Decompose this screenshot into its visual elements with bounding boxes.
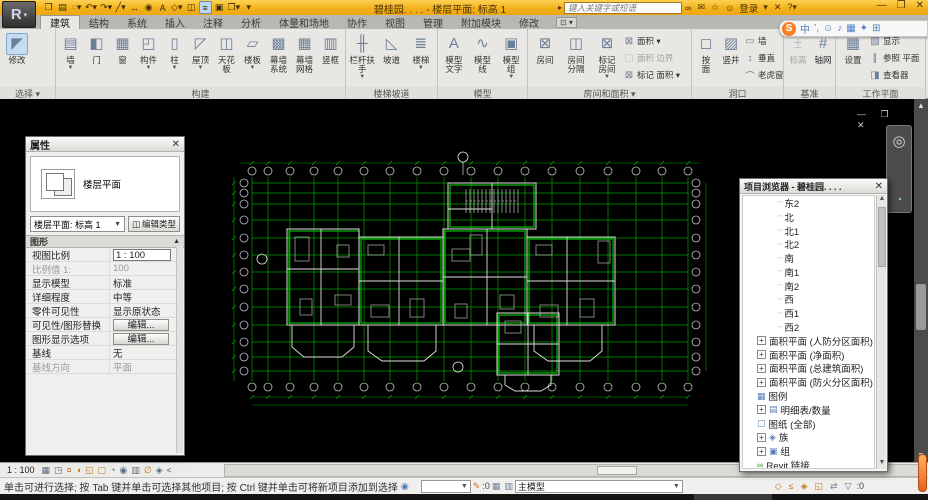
expand-icon[interactable]: +: [757, 447, 766, 456]
furniture: [536, 245, 552, 255]
grid-bubble-left: [240, 268, 248, 276]
editing-requests-count: :0: [482, 481, 490, 491]
chevron-down-icon: ▼: [359, 74, 365, 80]
type-selector-dropdown[interactable]: 楼层平面: 标高 1▼: [30, 216, 125, 232]
close-button[interactable]: ✕: [916, 0, 924, 11]
ime-skin[interactable]: ✦: [860, 23, 868, 34]
customize-qat-icon[interactable]: ▾: [242, 1, 255, 14]
edit-button[interactable]: 编辑...: [113, 333, 169, 345]
link-icon: ∞: [757, 460, 763, 469]
dormer-icon: ⌒: [744, 69, 756, 81]
chevron-down-icon: ▼: [198, 65, 204, 71]
panel-label-工作平面[interactable]: 工作平面: [836, 87, 925, 99]
modify-button[interactable]: ◤修改: [2, 31, 32, 85]
elevation-marker: [453, 362, 463, 372]
property-label: 基线: [26, 346, 110, 360]
grid-bubble-right: [692, 234, 700, 242]
furniture: [455, 304, 467, 318]
grid-bubble-bottom: [684, 383, 692, 391]
property-label: 显示模型: [26, 276, 110, 290]
crop-view-icon[interactable]: ◱: [85, 465, 94, 476]
grid-bubble-top: [632, 167, 640, 175]
property-label: 详细程度: [26, 290, 110, 304]
tab-体量和场地[interactable]: 体量和场地: [270, 15, 338, 29]
tab-附加模块[interactable]: 附加模块: [452, 15, 510, 29]
ramp-icon: ◺: [380, 33, 402, 55]
ceiling-icon: ◫: [216, 33, 238, 55]
area-button[interactable]: ⊠面积 ▾: [623, 33, 680, 49]
wall-opening-icon: ▭: [744, 35, 756, 47]
status-hint: 单击可进行选择; 按 Tab 键并单击可选择其他项目; 按 Ctrl 键并单击可…: [0, 479, 398, 494]
grid-button[interactable]: #轴网: [811, 31, 835, 85]
temporary-hide-isolate-icon[interactable]: ◔: [110, 465, 115, 475]
grid-bubble-bottom: [360, 383, 368, 391]
tab-建筑[interactable]: 建筑: [40, 15, 80, 29]
property-row: 视图比例1 : 100: [26, 248, 184, 262]
select-links-icon[interactable]: ◇: [775, 481, 782, 492]
grid-bubble-left: [240, 251, 248, 259]
filter-icon[interactable]: ▽: [845, 481, 852, 492]
furniture: [580, 299, 594, 317]
taskbar: [0, 494, 928, 500]
window-button[interactable]: ▦窗: [110, 31, 135, 85]
chevron-down-icon: ▼: [250, 65, 256, 71]
editing-requests-icon[interactable]: ✎: [473, 481, 481, 492]
tree-item-南1[interactable]: ┈南1: [743, 265, 874, 279]
area-boundary-icon: ▢: [623, 52, 635, 64]
grid-bubble-bottom: [576, 383, 584, 391]
tree-item-西[interactable]: ┈西: [743, 293, 874, 307]
tab-插入[interactable]: 插入: [156, 15, 194, 29]
ime-soft-keyboard[interactable]: ▦: [846, 23, 855, 34]
ceiling-button[interactable]: ◫天花板: [214, 31, 239, 85]
grid-bubble-top: [413, 167, 421, 175]
grid-bubble-right: [692, 321, 700, 329]
by-face-icon: ◻: [695, 33, 717, 55]
grid-bubble-left: [240, 321, 248, 329]
project-browser: 项目浏览器 - 碧桂园. . . . ✕ ┈东2┈北┈北1┈北2┈南┈南1┈南2…: [739, 178, 888, 472]
wall-button[interactable]: ▤墙▼: [58, 31, 83, 85]
grid-bubble-top: [576, 167, 584, 175]
group-icon: ▣: [769, 446, 778, 457]
type-preview-label: 楼层平面: [83, 177, 121, 191]
save-icon[interactable]: ▤: [56, 1, 69, 14]
scroll-up-icon[interactable]: ▲: [914, 99, 928, 112]
tag-area-icon: ⊠: [623, 69, 635, 81]
select-by-face-icon[interactable]: ◱: [815, 481, 824, 492]
stair-button[interactable]: ≣楼梯▼: [407, 31, 435, 85]
viewer-button[interactable]: ◨查看器: [869, 67, 919, 83]
project-browser-title: 项目浏览器 - 碧桂园. . . .: [744, 180, 842, 193]
text-icon[interactable]: A: [156, 1, 169, 14]
curtain-system-icon: ▩: [268, 33, 290, 55]
chevron-down-icon: ▼: [508, 74, 514, 80]
steering-wheel-icon[interactable]: ◎: [892, 132, 905, 150]
tree-item-图纸 (全部)[interactable]: ▢图纸 (全部): [743, 417, 874, 431]
project-browser-title-bar[interactable]: 项目浏览器 - 碧桂园. . . . ✕: [740, 179, 887, 194]
signin-arrow-icon[interactable]: ▾: [763, 2, 768, 13]
tree-item-北1[interactable]: ┈北1: [743, 224, 874, 238]
room-button[interactable]: ⊠房间: [530, 31, 560, 85]
ramp-button[interactable]: ◺坡道: [377, 31, 405, 85]
shadows-icon[interactable]: ◑: [76, 465, 81, 475]
collapse-icon[interactable]: <: [167, 466, 172, 475]
grid-bubble-right: [692, 353, 700, 361]
detail-level-icon[interactable]: ▦: [42, 465, 51, 476]
selection-filter-icon[interactable]: ◉: [401, 481, 409, 492]
component-button[interactable]: ◰构件▼: [136, 31, 161, 85]
curtain-grid-button[interactable]: ▦幕墙网格: [292, 31, 317, 85]
grid-bubble-right: [692, 338, 700, 346]
panel-label-构建[interactable]: 构建: [56, 87, 345, 99]
title-bar: R▾ ❒▤◌▾↶▾↷▾╱▾↔◉A◇▾◫≡▣❐▾▾ 碧桂园. . . . - 楼层…: [0, 0, 928, 15]
model-group-button[interactable]: ▣模型组▼: [497, 31, 525, 85]
status-bar: 单击可进行选择; 按 Tab 键并单击可选择其他项目; 按 Ctrl 键并单击可…: [0, 477, 928, 494]
browser-scroll-thumb[interactable]: [878, 207, 886, 267]
favorites-icon[interactable]: ☆: [711, 2, 719, 13]
visual-style-icon[interactable]: ◳: [54, 465, 63, 476]
communication-center-icon[interactable]: ✉: [697, 2, 705, 13]
curtain-system-button[interactable]: ▩幕墙系统: [266, 31, 291, 85]
minimize-button[interactable]: —: [877, 0, 887, 11]
collapse-icon[interactable]: ▲: [173, 238, 180, 245]
workset-status-icon[interactable]: ▥: [504, 481, 513, 492]
open-icon[interactable]: ❒: [42, 1, 55, 14]
column-icon: ▯: [164, 33, 186, 55]
project-browser-scrollbar[interactable]: ▲ ▼: [876, 195, 886, 469]
elevation-marker: [257, 254, 267, 264]
panel-label-楼梯坡道[interactable]: 楼梯坡道: [346, 87, 437, 99]
tab-协作[interactable]: 协作: [338, 15, 376, 29]
tree-item-西1[interactable]: ┈西1: [743, 306, 874, 320]
expand-icon[interactable]: +: [757, 433, 766, 442]
tree-item-图例[interactable]: ▦图例: [743, 389, 874, 403]
application-menu-button[interactable]: R▾: [2, 1, 36, 28]
grid-bubble-bottom: [310, 383, 318, 391]
dormer-button[interactable]: ⌒老虎窗: [744, 67, 784, 83]
expand-icon[interactable]: +: [757, 405, 766, 414]
zoom-icon[interactable]: ◔: [896, 194, 903, 206]
default-3d-view-icon[interactable]: ◇▾: [170, 1, 183, 14]
signin-label[interactable]: 登录: [739, 1, 758, 15]
worksharing-display-icon[interactable]: ▦: [492, 481, 501, 492]
reveal-hidden-elements-icon[interactable]: ◉: [119, 465, 127, 476]
column-button[interactable]: ▯柱▼: [162, 31, 187, 85]
grid-bubble-left: [240, 303, 248, 311]
balcony-bay: [292, 325, 354, 357]
edit-type-button[interactable]: ◫ 编辑类型: [128, 216, 180, 232]
ime-chinese-mode[interactable]: 中: [800, 21, 810, 36]
tab-注释[interactable]: 注释: [194, 15, 232, 29]
grid-bubble-top: [286, 167, 294, 175]
grid-bubble-bottom: [386, 383, 394, 391]
aligned-dimension-icon[interactable]: ↔: [128, 1, 141, 14]
grid-bubble-top: [604, 167, 612, 175]
tree-item-组[interactable]: +▣组: [743, 444, 874, 458]
chevron-down-icon: ▼: [114, 221, 121, 228]
modify-icon: ◤: [6, 33, 28, 55]
grid-bubble-bottom: [658, 383, 666, 391]
window-icon: ▦: [112, 33, 134, 55]
tree-item-北[interactable]: ┈北: [743, 210, 874, 224]
panel-label-模型[interactable]: 模型: [438, 87, 527, 99]
tree-item-面积平面 (防火分区面积)[interactable]: +面积平面 (防火分区面积): [743, 375, 874, 389]
tree-item-label: 族: [779, 430, 789, 444]
drag-on-selection-icon[interactable]: ⇄: [830, 481, 838, 492]
tree-item-明细表/数量[interactable]: +▤明细表/数量: [743, 403, 874, 417]
tree-item-label: 面积平面 (防火分区面积): [769, 375, 873, 389]
graphics-section-header[interactable]: 图形▲: [26, 235, 184, 248]
grid-bubble-top: [548, 167, 556, 175]
wall-icon: ▤: [60, 33, 82, 55]
property-label: 比例值 1:: [26, 262, 110, 276]
property-value: 显示原状态: [110, 304, 184, 318]
grid-bubble-top: [658, 167, 666, 175]
door-icon: ◧: [86, 33, 108, 55]
grid-bubble-left: [240, 200, 248, 208]
ribbon-panel-洞口: ◻按面▨竖井▭墙↕垂直⌒老虎窗洞口: [692, 29, 784, 99]
mullion-button[interactable]: ▥竖框: [318, 31, 343, 85]
panel-label-基准[interactable]: 基准: [784, 87, 835, 99]
grid-bubble-left: [240, 285, 248, 293]
properties-scrollbar[interactable]: [176, 247, 183, 453]
tree-item-南[interactable]: ┈南: [743, 251, 874, 265]
sun-path-icon[interactable]: ¤: [67, 465, 72, 475]
balcony-bay: [534, 325, 602, 361]
revit-window: R▾ ❒▤◌▾↶▾↷▾╱▾↔◉A◇▾◫≡▣❐▾▾ 碧桂园. . . . - 楼层…: [0, 0, 928, 500]
select-underlay-icon[interactable]: ≤: [789, 481, 794, 491]
model-text-button[interactable]: A模型文字: [440, 31, 468, 85]
ribbon-panel-楼梯坡道: ╫栏杆扶手▼◺坡道≣楼梯▼楼梯坡道: [346, 29, 438, 99]
property-label: 视图比例: [26, 248, 110, 262]
area-icon: ⊠: [623, 35, 635, 47]
vertical-scrollbar[interactable]: ▲ ▼: [914, 99, 928, 462]
tab-系统[interactable]: 系统: [118, 15, 156, 29]
tree-item-label: 图纸 (全部): [769, 417, 816, 431]
search-history-icon[interactable]: ▸: [558, 3, 562, 12]
vertical-opening-button[interactable]: ↕垂直: [744, 50, 784, 66]
property-value: 无: [110, 346, 184, 360]
close-hidden-windows-icon[interactable]: ▣: [213, 1, 226, 14]
property-label: 图形显示选项: [26, 332, 110, 346]
wall-opening-button[interactable]: ▭墙: [744, 33, 784, 49]
tree-item-族[interactable]: +◈族: [743, 431, 874, 445]
tree-item-面积平面 (净面积)[interactable]: +面积平面 (净面积): [743, 348, 874, 362]
tree-item-南2[interactable]: ┈南2: [743, 279, 874, 293]
displace-elements-icon[interactable]: ◈: [156, 465, 163, 476]
worksets-dropdown[interactable]: ▼: [421, 480, 471, 493]
thin-lines-icon[interactable]: ≡: [199, 1, 212, 14]
grid-bubble-bottom: [334, 383, 342, 391]
project-browser-close-icon[interactable]: ✕: [875, 181, 883, 192]
grid-bubble-right: [692, 216, 700, 224]
redo-icon[interactable]: ↷▾: [99, 1, 113, 14]
wall-outline: [287, 229, 359, 325]
ribbon-panel-基准: ±标高#轴网基准: [784, 29, 836, 99]
design-options-dropdown[interactable]: 主模型▼: [515, 480, 683, 493]
tree-item-面积平面 (人防分区面积)[interactable]: +面积平面 (人防分区面积): [743, 334, 874, 348]
tab-结构[interactable]: 结构: [80, 15, 118, 29]
grid-bubble-bottom: [494, 383, 502, 391]
properties-close-icon[interactable]: ✕: [172, 139, 180, 150]
balcony-bay: [505, 375, 551, 391]
scroll-down-icon[interactable]: ▼: [877, 459, 887, 469]
ime-pen-handle[interactable]: [918, 454, 927, 492]
tree-item-label: 西: [784, 292, 794, 306]
tree-item-label: 面积平面 (人防分区面积): [769, 334, 873, 348]
roof-icon: ◸: [190, 33, 212, 55]
panel-label-洞口[interactable]: 洞口: [692, 87, 783, 99]
grid-bubble-top: [440, 167, 448, 175]
property-input[interactable]: 1 : 100: [113, 249, 171, 261]
ribbon-panel-模型: A模型文字∿模型线▣模型组▼模型: [438, 29, 528, 99]
tag-icon[interactable]: ◉: [142, 1, 155, 14]
scroll-up-icon[interactable]: ▲: [877, 195, 887, 205]
model-line-icon: ∿: [472, 33, 494, 55]
tree-item-label: 南: [784, 251, 794, 265]
opening-by-face-button[interactable]: ◻按面: [694, 31, 718, 85]
navigation-bar[interactable]: ◎ ◔: [886, 125, 912, 213]
ime-toolbox[interactable]: ⊞: [872, 23, 880, 34]
expand-icon[interactable]: +: [757, 378, 766, 387]
horizontal-scroll-thumb[interactable]: [597, 466, 637, 475]
tree-item-西2[interactable]: ┈西2: [743, 320, 874, 334]
signin-icon[interactable]: ☺: [725, 3, 734, 13]
grid-bubble-bottom: [548, 383, 556, 391]
view-scale-button[interactable]: 1 : 100: [4, 464, 38, 476]
ref-plane-button[interactable]: ∥参照 平面: [869, 50, 919, 66]
curtain-grid-icon: ▦: [294, 33, 316, 55]
expand-icon[interactable]: +: [757, 336, 766, 345]
grid-bubble-right: [692, 285, 700, 293]
tree-item-面积平面 (总建筑面积)[interactable]: +面积平面 (总建筑面积): [743, 362, 874, 376]
ribbon: ◤修改选择 ▾▤墙▼◧门▦窗◰构件▼▯柱▼◸屋顶▼◫天花板▱楼板▼▩幕墙系统▦幕…: [0, 29, 928, 99]
ime-emoji[interactable]: ☺: [823, 23, 833, 34]
switch-windows-icon[interactable]: ❐▾: [227, 1, 242, 14]
grid-bubble-left: [240, 189, 248, 197]
properties-palette: 属性 ✕ 楼层平面 楼层平面: 标高 1▼ ◫ 编辑类型 图形▲ 视图比例1 :…: [25, 136, 185, 456]
tree-item-北2[interactable]: ┈北2: [743, 237, 874, 251]
sogou-logo-icon[interactable]: S: [782, 22, 796, 36]
tree-item-东2[interactable]: ┈东2: [743, 196, 874, 210]
window-controls: — ❐ ✕: [877, 0, 924, 11]
furniture: [295, 237, 309, 261]
grid-bubble-top: [264, 167, 272, 175]
taskbar-item[interactable]: [694, 494, 772, 500]
maximize-button[interactable]: ❐: [897, 0, 906, 11]
temporary-view-properties-icon[interactable]: ▥: [131, 465, 140, 476]
tree-item-label: 明细表/数量: [781, 403, 831, 417]
grid-bubble-bottom: [264, 383, 272, 391]
tab-修改[interactable]: 修改: [510, 15, 548, 29]
grid-bubble-top: [334, 167, 342, 175]
type-preview: 楼层平面: [30, 156, 180, 212]
grid-bubble-bottom: [248, 383, 256, 391]
area-boundary-button: ▢面积 边界: [623, 50, 680, 66]
panel-label-选择[interactable]: 选择 ▾: [0, 87, 55, 99]
floor-plan-type-icon: [41, 169, 75, 199]
sync-icon[interactable]: ◌▾: [70, 1, 83, 14]
measure-icon[interactable]: ╱▾: [114, 1, 127, 14]
property-row: 基线无: [26, 346, 184, 360]
properties-title-bar[interactable]: 属性 ✕: [26, 137, 184, 152]
property-row: 可见性/图形替换编辑...: [26, 318, 184, 332]
shaft-icon: ▨: [720, 33, 742, 55]
tree-item-label: 图例: [769, 389, 788, 403]
show-crop-region-icon[interactable]: ▢: [98, 465, 107, 476]
chevron-down-icon: ▼: [146, 65, 152, 71]
railing-icon: ╫: [351, 33, 373, 55]
help-icon[interactable]: ?▾: [787, 2, 797, 13]
grid-bubble-bottom: [440, 383, 448, 391]
edit-button[interactable]: 编辑...: [113, 319, 169, 331]
property-value: 编辑...: [110, 319, 184, 331]
ime-voice-input[interactable]: ♪: [837, 23, 842, 34]
tag-room-button[interactable]: ⊠标记房间▼: [592, 31, 622, 85]
grid-bubble-right: [692, 303, 700, 311]
set-workplane-button[interactable]: ▦设置: [838, 31, 868, 85]
tag-room-icon: ⊠: [596, 33, 618, 55]
tree-item-label: 西1: [784, 306, 799, 320]
tag-area-button[interactable]: ⊠标记 面积 ▾: [623, 67, 680, 83]
panel-label-房间和面积[interactable]: 房间和面积 ▾: [528, 87, 691, 99]
chevron-down-icon: ▼: [418, 65, 424, 71]
property-label: 零件可见性: [26, 304, 110, 318]
property-row: 比例值 1:100: [26, 262, 184, 276]
search-input[interactable]: [564, 2, 682, 14]
railing-button[interactable]: ╫栏杆扶手▼: [348, 31, 376, 85]
tree-item-Revit 链接[interactable]: ∞Revit 链接: [743, 458, 874, 469]
property-value: 1 : 100: [110, 249, 184, 261]
room-separator-button[interactable]: ◫房间分隔: [561, 31, 591, 85]
property-value: 中等: [110, 290, 184, 304]
select-pinned-icon[interactable]: ◈: [801, 481, 808, 492]
model-line-button[interactable]: ∿模型线: [469, 31, 497, 85]
ribbon-panel-工作平面: ▦设置▧显示∥参照 平面◨查看器工作平面: [836, 29, 926, 99]
ref-plane-icon: ∥: [869, 52, 881, 64]
roof-button[interactable]: ◸屋顶▼: [188, 31, 213, 85]
vertical-opening-icon: ↕: [744, 52, 756, 64]
floor-button[interactable]: ▱楼板▼: [240, 31, 265, 85]
grid-bubble-right: [692, 367, 700, 375]
tab-分析[interactable]: 分析: [232, 15, 270, 29]
door-button[interactable]: ◧门: [84, 31, 109, 85]
vertical-scroll-thumb[interactable]: [916, 284, 926, 330]
tab-管理[interactable]: 管理: [414, 15, 452, 29]
hide-analytical-model-icon[interactable]: ∅: [144, 465, 152, 476]
undo-icon[interactable]: ↶▾: [84, 1, 98, 14]
tree-item-label: 面积平面 (总建筑面积): [769, 361, 863, 375]
tree-item-label: 北2: [784, 237, 799, 251]
grid-bubble-right: [692, 189, 700, 197]
property-value: 编辑...: [110, 333, 184, 345]
ime-punctuation[interactable]: ’,: [814, 23, 819, 34]
shaft-button[interactable]: ▨竖井: [719, 31, 743, 85]
exchange-apps-icon[interactable]: ✕: [774, 2, 782, 13]
grid-bubble-top: [248, 167, 256, 175]
expand-icon[interactable]: +: [757, 350, 766, 359]
section-icon[interactable]: ◫: [185, 1, 198, 14]
search-icon[interactable]: ∞: [685, 3, 691, 13]
expand-icon[interactable]: +: [757, 364, 766, 373]
floor-icon: ▱: [242, 33, 264, 55]
tab-视图[interactable]: 视图: [376, 15, 414, 29]
ime-toolbar: S 中’,☺♪▦✦⊞: [779, 20, 928, 37]
panel-display-toggle[interactable]: ⊡ ▾: [556, 17, 577, 28]
grid-bubble-right: [692, 268, 700, 276]
tree-item-label: 南1: [784, 265, 799, 279]
tree-item-label: 西2: [784, 320, 799, 334]
